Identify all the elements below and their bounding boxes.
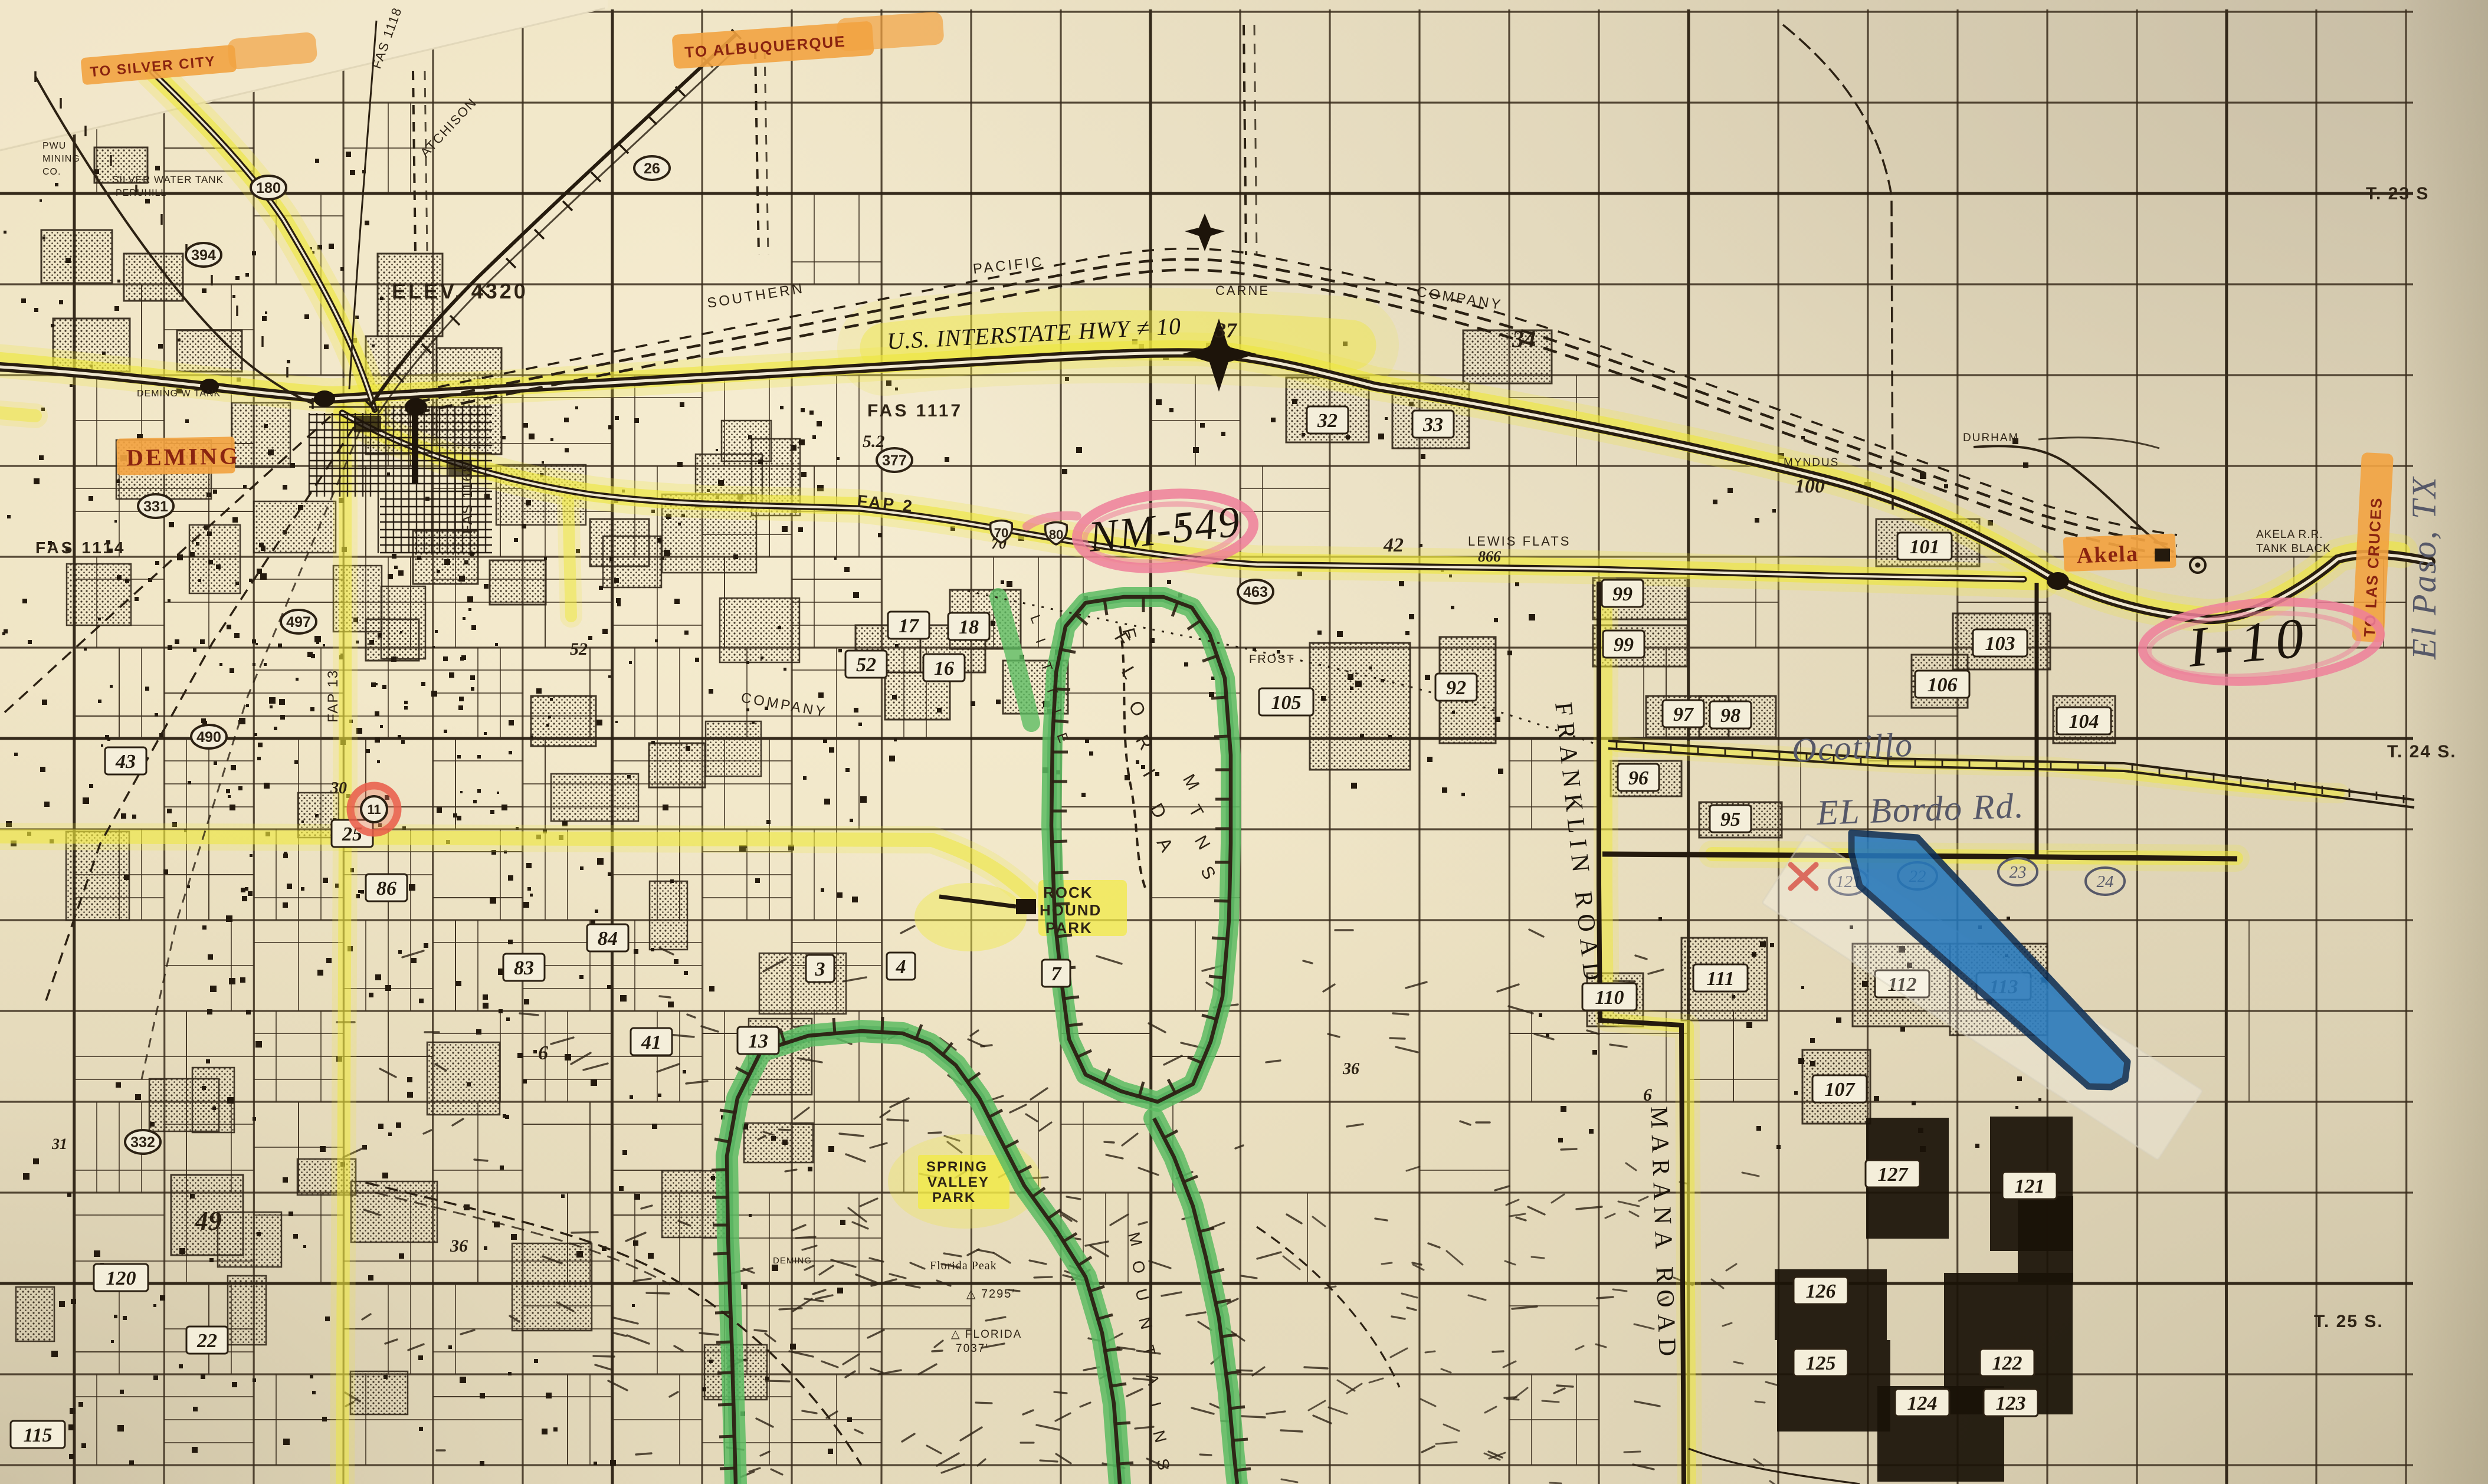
svg-text:Florida Peak: Florida Peak (930, 1259, 997, 1272)
svg-text:377: 377 (882, 452, 907, 469)
svg-text:43: 43 (115, 751, 136, 773)
svg-text:HOUND: HOUND (1040, 901, 1102, 919)
svg-text:103: 103 (1985, 633, 2015, 655)
svg-text:DEMING: DEMING (126, 442, 241, 471)
svg-text:124: 124 (1907, 1393, 1938, 1414)
svg-text:99: 99 (1614, 634, 1634, 656)
svg-text:TANK BLACK: TANK BLACK (2256, 543, 2331, 555)
svg-text:95: 95 (1720, 809, 1740, 830)
svg-text:CARNE: CARNE (1215, 283, 1270, 298)
svg-text:86: 86 (376, 878, 396, 899)
svg-text:7037′: 7037′ (956, 1342, 989, 1355)
svg-text:33: 33 (1422, 414, 1443, 436)
svg-text:36: 36 (450, 1236, 468, 1256)
svg-text:120: 120 (106, 1268, 136, 1289)
svg-text:49: 49 (194, 1206, 222, 1236)
svg-text:100: 100 (1795, 475, 1825, 497)
svg-text:26: 26 (644, 160, 660, 177)
svg-text:6: 6 (538, 1042, 548, 1064)
svg-text:ELEV. 4320: ELEV. 4320 (392, 279, 528, 303)
svg-text:EL Bordo Rd.: EL Bordo Rd. (1815, 786, 2025, 832)
svg-text:121: 121 (2015, 1176, 2045, 1197)
svg-text:FAP 13: FAP 13 (325, 669, 341, 723)
svg-text:LEWIS FLATS: LEWIS FLATS (1468, 534, 1571, 549)
svg-text:AKELA R.R.: AKELA R.R. (2256, 528, 2323, 541)
svg-text:7: 7 (1051, 963, 1063, 985)
svg-text:FAS 1117: FAS 1117 (867, 401, 963, 421)
svg-text:DEMING W TANK: DEMING W TANK (137, 389, 221, 399)
svg-text:97: 97 (1673, 704, 1694, 725)
svg-text:ROCK: ROCK (1043, 884, 1093, 901)
svg-text:866: 866 (1478, 548, 1501, 565)
svg-text:110: 110 (1595, 987, 1624, 1009)
svg-text:PARK: PARK (932, 1190, 976, 1206)
svg-text:34: 34 (1512, 326, 1536, 352)
svg-text:11: 11 (367, 802, 381, 817)
svg-text:PERUHILL: PERUHILL (116, 188, 166, 198)
svg-text:36: 36 (1342, 1060, 1359, 1078)
svg-text:18: 18 (959, 616, 979, 638)
svg-text:I-10: I-10 (2185, 605, 2313, 679)
svg-text:5.2: 5.2 (863, 432, 885, 451)
svg-text:T. 23 S: T. 23 S (2366, 184, 2429, 203)
svg-text:FAS 1168: FAS 1168 (460, 463, 476, 534)
svg-text:99: 99 (1612, 583, 1633, 605)
svg-text:96: 96 (1628, 767, 1648, 789)
svg-text:Ocotillo: Ocotillo (1791, 725, 1914, 770)
svg-text:83: 83 (514, 957, 534, 979)
svg-text:PWU: PWU (42, 141, 66, 151)
svg-text:490: 490 (196, 729, 221, 746)
svg-text:111: 111 (1706, 968, 1734, 990)
svg-text:394: 394 (191, 247, 216, 264)
svg-text:4: 4 (896, 956, 906, 978)
svg-text:13: 13 (748, 1030, 768, 1052)
svg-text:VALLEY: VALLEY (927, 1174, 989, 1190)
svg-text:23: 23 (2010, 863, 2027, 882)
svg-text:123: 123 (1996, 1393, 2026, 1414)
svg-text:24: 24 (2097, 872, 2114, 891)
svg-text:SILVER WATER TANK: SILVER WATER TANK (112, 174, 224, 185)
svg-text:180: 180 (256, 180, 281, 196)
svg-text:PARK: PARK (1045, 919, 1093, 937)
svg-text:6: 6 (1643, 1085, 1652, 1105)
svg-text:T. 25 S.: T. 25 S. (2314, 1312, 2384, 1331)
svg-text:101: 101 (1910, 536, 1940, 558)
svg-text:126: 126 (1806, 1281, 1836, 1302)
svg-text:92: 92 (1446, 677, 1466, 699)
svg-text:105: 105 (1271, 692, 1302, 714)
svg-text:El Paso, TX: El Paso, TX (2405, 475, 2443, 660)
svg-text:497: 497 (286, 614, 311, 631)
svg-text:MYNDUS: MYNDUS (1784, 457, 1839, 469)
svg-text:41: 41 (641, 1032, 661, 1053)
svg-text:SPRING: SPRING (926, 1159, 988, 1175)
svg-text:T. 24 S.: T. 24 S. (2387, 742, 2457, 761)
svg-text:106: 106 (1928, 674, 1958, 696)
svg-text:Akela: Akela (2076, 541, 2139, 569)
svg-text:125: 125 (1806, 1352, 1836, 1374)
svg-text:MINING: MINING (42, 154, 80, 164)
svg-text:463: 463 (1243, 584, 1268, 600)
svg-text:17: 17 (899, 615, 920, 637)
svg-text:△ FLORIDA: △ FLORIDA (951, 1328, 1022, 1341)
svg-text:122: 122 (1992, 1352, 2022, 1374)
svg-text:42: 42 (1383, 534, 1404, 556)
svg-text:80: 80 (1049, 527, 1063, 542)
svg-text:DURHAM: DURHAM (1963, 432, 2019, 444)
svg-text:31: 31 (51, 1135, 67, 1153)
svg-text:107: 107 (1825, 1079, 1856, 1101)
svg-text:52: 52 (570, 639, 588, 659)
svg-text:84: 84 (598, 928, 618, 950)
svg-text:331: 331 (143, 498, 168, 515)
svg-text:37: 37 (1215, 319, 1238, 342)
svg-text:22: 22 (196, 1330, 217, 1352)
svg-text:3: 3 (815, 958, 825, 980)
svg-text:30: 30 (330, 779, 347, 797)
svg-text:FROST: FROST (1249, 653, 1295, 666)
svg-text:332: 332 (130, 1134, 155, 1151)
svg-text:FAS 1114: FAS 1114 (35, 539, 126, 557)
svg-text:98: 98 (1720, 705, 1740, 727)
svg-text:16: 16 (934, 658, 954, 679)
svg-text:127: 127 (1878, 1164, 1909, 1186)
svg-text:70: 70 (994, 526, 1008, 540)
svg-text:DEMING: DEMING (773, 1256, 812, 1266)
svg-text:△ 7295′: △ 7295′ (966, 1288, 1015, 1301)
svg-text:CO.: CO. (42, 167, 61, 177)
svg-text:104: 104 (2069, 711, 2099, 733)
svg-text:52: 52 (856, 654, 876, 676)
svg-text:32: 32 (1317, 410, 1338, 432)
svg-text:115: 115 (23, 1424, 52, 1446)
